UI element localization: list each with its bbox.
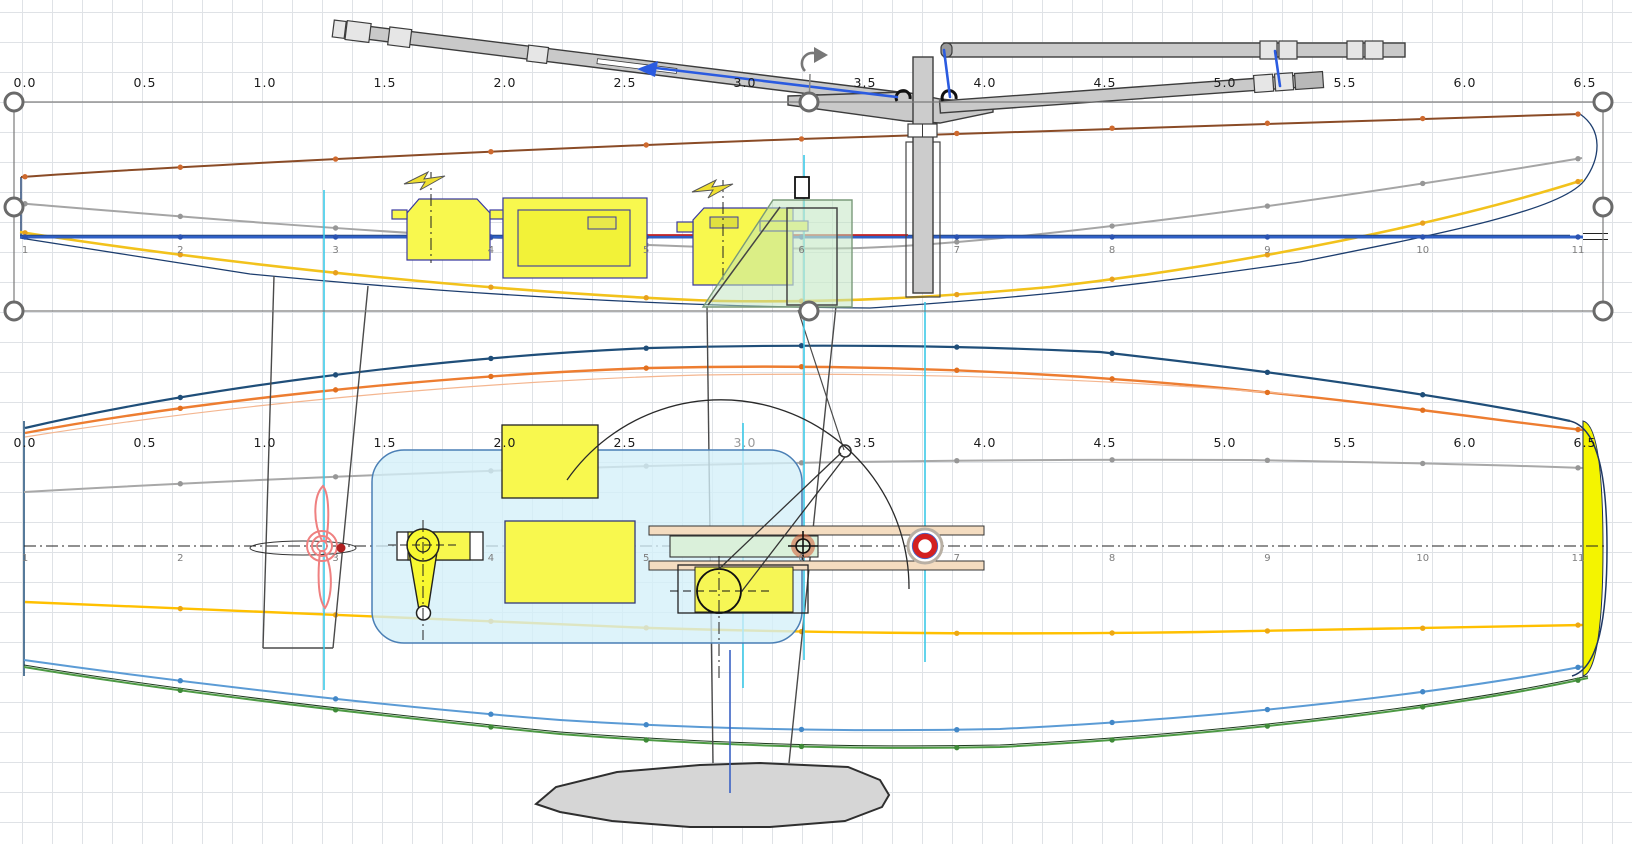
servo-side-1[interactable] — [407, 199, 490, 260]
curve-node-dot — [22, 174, 27, 179]
curve-node-dot — [178, 606, 183, 611]
curve-node-dot — [1575, 179, 1580, 184]
front-boom-collar — [345, 21, 371, 43]
side-view-components[interactable] — [392, 142, 940, 307]
ruler-top-label: 2.0 — [494, 75, 517, 90]
rear-boom-collar — [1254, 74, 1274, 92]
curve-node-dot — [1265, 203, 1270, 208]
ruler-bottom-label: 4.5 — [1094, 435, 1117, 450]
battery-side-connector — [588, 217, 616, 229]
stations-plan-label: 7 — [954, 553, 960, 564]
selection-handle-icon[interactable] — [1594, 198, 1612, 216]
curve-node-dot — [1575, 465, 1580, 470]
stations-plan-label: 2 — [177, 553, 183, 564]
plan-battery-main[interactable] — [505, 521, 635, 603]
station-numbers-plan: 1234567891011 — [22, 553, 1585, 564]
ruler-top-label: 6.5 — [1574, 75, 1597, 90]
selection-handle-icon[interactable] — [800, 93, 818, 111]
curve-node-dot — [1109, 223, 1114, 228]
curve-node-dot — [1420, 116, 1425, 121]
stations-side-label: 4 — [488, 245, 494, 256]
curve-node-dot — [178, 688, 183, 693]
ruler-top-label: 3.5 — [854, 75, 877, 90]
curve-node-dot — [1575, 665, 1580, 670]
ruler-top-label: 1.5 — [374, 75, 397, 90]
plan-inner-chine-line[interactable] — [25, 374, 1300, 437]
top-boom-collar — [1365, 41, 1383, 59]
ruler-top-label: 0.0 — [14, 75, 37, 90]
ruler-top-label: 5.5 — [1334, 75, 1357, 90]
curve-node-dot — [954, 292, 959, 297]
selection-handle-icon[interactable] — [1594, 93, 1612, 111]
selection-handle-icon[interactable] — [800, 302, 818, 320]
selection-handle-icon[interactable] — [5, 302, 23, 320]
curve-node-dot — [488, 149, 493, 154]
ruler-bottom-label: 4.0 — [974, 435, 997, 450]
curve-node-dot — [1109, 720, 1114, 725]
servo-2-tab-left — [677, 222, 693, 232]
ruler-top-label: 0.5 — [134, 75, 157, 90]
plan-diagonal-line[interactable] — [24, 660, 1585, 730]
curve-node-dot — [643, 142, 648, 147]
curve-node-dot — [1265, 234, 1270, 239]
stations-plan-label: 6 — [798, 553, 804, 564]
stations-plan-label: 9 — [1264, 553, 1270, 564]
curve-node-dot — [954, 745, 959, 750]
curve-node-dot — [643, 345, 648, 350]
curve-node-dot — [954, 727, 959, 732]
selection-handle-icon[interactable] — [5, 93, 23, 111]
curve-node-dot — [1575, 234, 1580, 239]
curve-node-dot — [1420, 392, 1425, 397]
bullseye-icon[interactable] — [908, 529, 942, 563]
side-sheer-line[interactable] — [21, 114, 1580, 177]
curve-node-dot — [1265, 707, 1270, 712]
stations-side-label: 2 — [177, 245, 183, 256]
rear-boom-endcap — [1295, 72, 1324, 90]
stations-side-label: 10 — [1416, 245, 1429, 256]
curve-node-dot — [1109, 126, 1114, 131]
stations-side-label: 3 — [332, 245, 338, 256]
front-boom-collar — [388, 27, 412, 48]
curve-node-dot — [333, 707, 338, 712]
curve-node-dot — [488, 374, 493, 379]
plan-bow-stem[interactable] — [1583, 421, 1603, 676]
ruler-top-label: 5.0 — [1214, 75, 1237, 90]
curve-node-dot — [333, 225, 338, 230]
lightning-bolt-icon — [692, 180, 733, 198]
curve-node-dot — [1109, 234, 1114, 239]
stations-side-label: 6 — [798, 245, 804, 256]
ruler-top-label: 6.0 — [1454, 75, 1477, 90]
curve-node-dot — [488, 356, 493, 361]
front-boom-endcap — [332, 20, 346, 38]
ruler-bottom-label: 0.5 — [134, 435, 157, 450]
servo-1-tab-left — [392, 210, 407, 219]
curve-node-dot — [22, 234, 27, 239]
curve-node-dot — [333, 156, 338, 161]
stations-plan-label: 1 — [22, 553, 28, 564]
curve-node-dot — [488, 712, 493, 717]
top-boom-endcap — [941, 43, 952, 57]
lightning-bolt-icon — [404, 172, 445, 190]
ruler-bottom-label: 6.0 — [1454, 435, 1477, 450]
curve-node-dot — [178, 678, 183, 683]
curve-node-dot — [954, 458, 959, 463]
ruler-bottom-label: 3.5 — [854, 435, 877, 450]
curve-node-dot — [954, 234, 959, 239]
stations-side-label: 11 — [1572, 245, 1585, 256]
curve-node-dot — [333, 234, 338, 239]
ruler-bottom-label: 2.5 — [614, 435, 637, 450]
mast[interactable] — [913, 57, 933, 293]
stations-plan-label: 8 — [1109, 553, 1115, 564]
curve-node-dot — [178, 395, 183, 400]
rotation-handle-icon[interactable] — [802, 47, 828, 71]
stations-plan-label: 3 — [332, 553, 338, 564]
mast-gate[interactable] — [795, 177, 809, 198]
curve-node-dot — [1265, 370, 1270, 375]
selection-handle-icon[interactable] — [5, 198, 23, 216]
ruler-top-label: 2.5 — [614, 75, 637, 90]
curve-node-dot — [1420, 626, 1425, 631]
ruler-bottom-label: 5.5 — [1334, 435, 1357, 450]
curve-node-dot — [954, 344, 959, 349]
curve-node-dot — [1575, 677, 1580, 682]
ruler-bottom-label: 1.5 — [374, 435, 397, 450]
ruler-top-label: 3.0 — [734, 75, 757, 90]
ruler-bottom-label: 2.0 — [494, 435, 517, 450]
curve-node-dot — [1265, 390, 1270, 395]
curve-node-dot — [799, 136, 804, 141]
curve-node-dot — [333, 270, 338, 275]
curve-node-dot — [1420, 181, 1425, 186]
curve-node-dot — [1109, 737, 1114, 742]
curve-node-dot — [954, 131, 959, 136]
curve-node-dot — [954, 368, 959, 373]
curve-node-dot — [1575, 111, 1580, 116]
winch-drum-body[interactable] — [695, 567, 793, 612]
curve-node-dot — [1265, 458, 1270, 463]
curve-node-dot — [799, 744, 804, 749]
stations-plan-label: 5 — [643, 553, 649, 564]
ruler-top-label: 4.0 — [974, 75, 997, 90]
stations-plan-label: 11 — [1572, 553, 1585, 564]
curve-node-dot — [643, 365, 648, 370]
plan-bottom-outline — [24, 665, 1588, 746]
ruler-bottom-label: 1.0 — [254, 435, 277, 450]
cad-drawing[interactable]: 0.00.51.01.52.02.53.03.54.04.55.05.56.06… — [0, 0, 1632, 844]
keel-bulb[interactable] — [536, 763, 889, 827]
curve-node-dot — [1420, 220, 1425, 225]
curve-node-dot — [1109, 376, 1114, 381]
keel-fin-trunk[interactable] — [787, 208, 837, 305]
curve-node-dot — [644, 295, 649, 300]
curve-node-dot — [954, 631, 959, 636]
curve-node-dot — [178, 165, 183, 170]
curve-node-dot — [333, 387, 338, 392]
stations-side-label: 5 — [643, 245, 649, 256]
curve-node-dot — [1575, 622, 1580, 627]
curve-node-dot — [644, 737, 649, 742]
ruler-bottom-label: 6.5 — [1574, 435, 1597, 450]
curve-node-dot — [1420, 704, 1425, 709]
servo-2-inner — [710, 217, 738, 228]
curve-node-dot — [488, 724, 493, 729]
curve-node-dot — [1420, 689, 1425, 694]
curve-node-dot — [1420, 234, 1425, 239]
ruler-bottom: 0.00.51.01.52.02.53.03.54.04.55.05.56.06… — [14, 435, 1597, 450]
curve-node-dot — [1265, 723, 1270, 728]
curve-node-dot — [1265, 121, 1270, 126]
curve-node-dot — [333, 696, 338, 701]
curve-node-dot — [1109, 351, 1114, 356]
curve-node-dot — [1109, 630, 1114, 635]
curve-node-dot — [178, 214, 183, 219]
curve-node-dot — [178, 481, 183, 486]
selection-handle-icon[interactable] — [1594, 302, 1612, 320]
ruler-bottom-label: 0.0 — [14, 435, 37, 450]
ruler-bottom-label: 3.0 — [734, 435, 757, 450]
curve-node-dot — [1420, 407, 1425, 412]
curve-node-dot — [333, 474, 338, 479]
top-boom-collar — [1347, 41, 1363, 59]
front-boom-collar — [527, 45, 549, 63]
rudder-leading-edge[interactable] — [263, 276, 274, 648]
curve-node-dot — [333, 372, 338, 377]
curve-node-dot — [799, 727, 804, 732]
top-boom[interactable] — [941, 41, 1405, 59]
curve-node-dot — [1575, 427, 1580, 432]
curve-node-dot — [1265, 628, 1270, 633]
stations-plan-label: 10 — [1416, 553, 1429, 564]
curve-node-dot — [178, 406, 183, 411]
stations-plan-label: 4 — [488, 553, 494, 564]
curve-node-dot — [1575, 156, 1580, 161]
curve-node-dot — [1109, 457, 1114, 462]
stations-side-label: 9 — [1264, 245, 1270, 256]
stations-side-label: 1 — [22, 245, 28, 256]
curve-node-dot — [1420, 461, 1425, 466]
stations-side-label: 7 — [954, 245, 960, 256]
ruler-top-label: 1.0 — [254, 75, 277, 90]
rotation-handle-stem — [810, 74, 811, 93]
curve-node-dot — [1109, 277, 1114, 282]
stations-side-label: 8 — [1109, 245, 1115, 256]
station-numbers-side: 1234567891011 — [22, 245, 1585, 256]
plan-bottom-green-line[interactable] — [24, 667, 1588, 748]
prop-shaft-end — [337, 544, 346, 553]
rudder-trailing-edge[interactable] — [333, 286, 368, 648]
curve-node-dot — [488, 285, 493, 290]
curve-node-dot — [954, 239, 959, 244]
ruler-bottom-label: 5.0 — [1214, 435, 1237, 450]
drawing-canvas[interactable]: 0.00.51.01.52.02.53.03.54.04.55.05.56.06… — [0, 0, 1632, 844]
top-boom-collar — [1279, 41, 1297, 59]
rear-lower-boom[interactable] — [939, 71, 1323, 115]
ruler-top-label: 4.5 — [1094, 75, 1117, 90]
curve-node-dot — [643, 722, 648, 727]
curve-node-dot — [178, 234, 183, 239]
